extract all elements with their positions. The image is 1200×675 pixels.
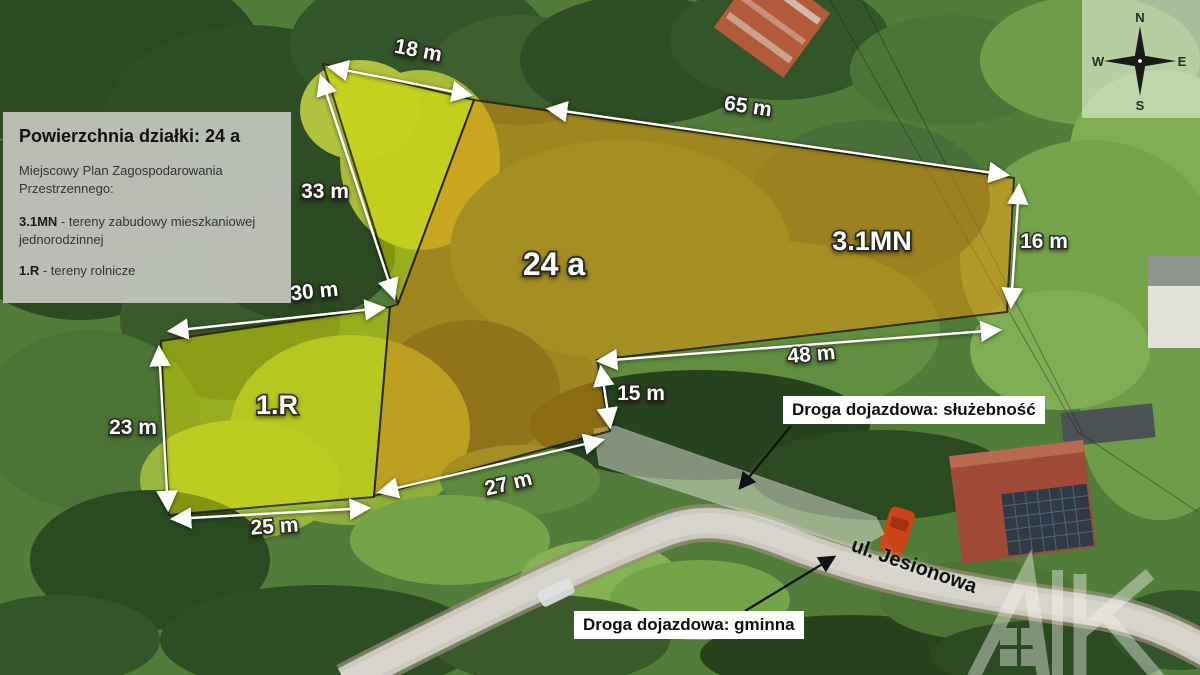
parcel-area-title: Powierzchnia działki: 24 a: [19, 126, 275, 147]
compass-s-label: S: [1136, 98, 1145, 113]
municipal-road-label: Droga dojazdowa: gminna: [574, 611, 804, 639]
parcel-info-box: Powierzchnia działki: 24 a Miejscowy Pla…: [3, 112, 291, 303]
zone-mn-code: 3.1MN: [19, 214, 57, 229]
compass-rose: N S W E: [1082, 0, 1200, 118]
zone-mn-legend: 3.1MN - tereny zabudowy mieszkaniowej je…: [19, 213, 275, 249]
aerial-parcel-graphic: 18 m 65 m 33 m 30 m 16 m 48 m 15 m 23 m …: [0, 0, 1200, 675]
compass-e-label: E: [1178, 54, 1187, 69]
parcel-area-label: 24 a: [523, 246, 585, 282]
zoning-plan-label: Miejscowy Plan Zagospodarowania Przestrz…: [19, 162, 275, 198]
parcel-zone-r-label: 1.R: [256, 390, 298, 420]
dim-label-33m: 33 m: [301, 180, 349, 203]
dim-label-48m: 48 m: [787, 341, 837, 368]
red-roof-house: [949, 440, 1096, 564]
zone-r-legend: 1.R - tereny rolnicze: [19, 262, 275, 280]
parcel-zone-mn-label: 3.1MN: [832, 226, 912, 256]
compass-n-label: N: [1135, 10, 1144, 25]
zone-r-desc: - tereny rolnicze: [39, 263, 135, 278]
zone-r-code: 1.R: [19, 263, 39, 278]
dim-label-23m: 23 m: [109, 416, 157, 439]
easement-road-label: Droga dojazdowa: służebność: [783, 396, 1045, 424]
dim-label-16m: 16 m: [1020, 230, 1068, 253]
aerial-photo-canvas: 18 m 65 m 33 m 30 m 16 m 48 m 15 m 23 m …: [0, 0, 1200, 675]
white-house: [1148, 256, 1200, 348]
dim-label-25m: 25 m: [250, 513, 299, 539]
compass-w-label: W: [1092, 54, 1105, 69]
dim-label-15m: 15 m: [617, 382, 665, 405]
